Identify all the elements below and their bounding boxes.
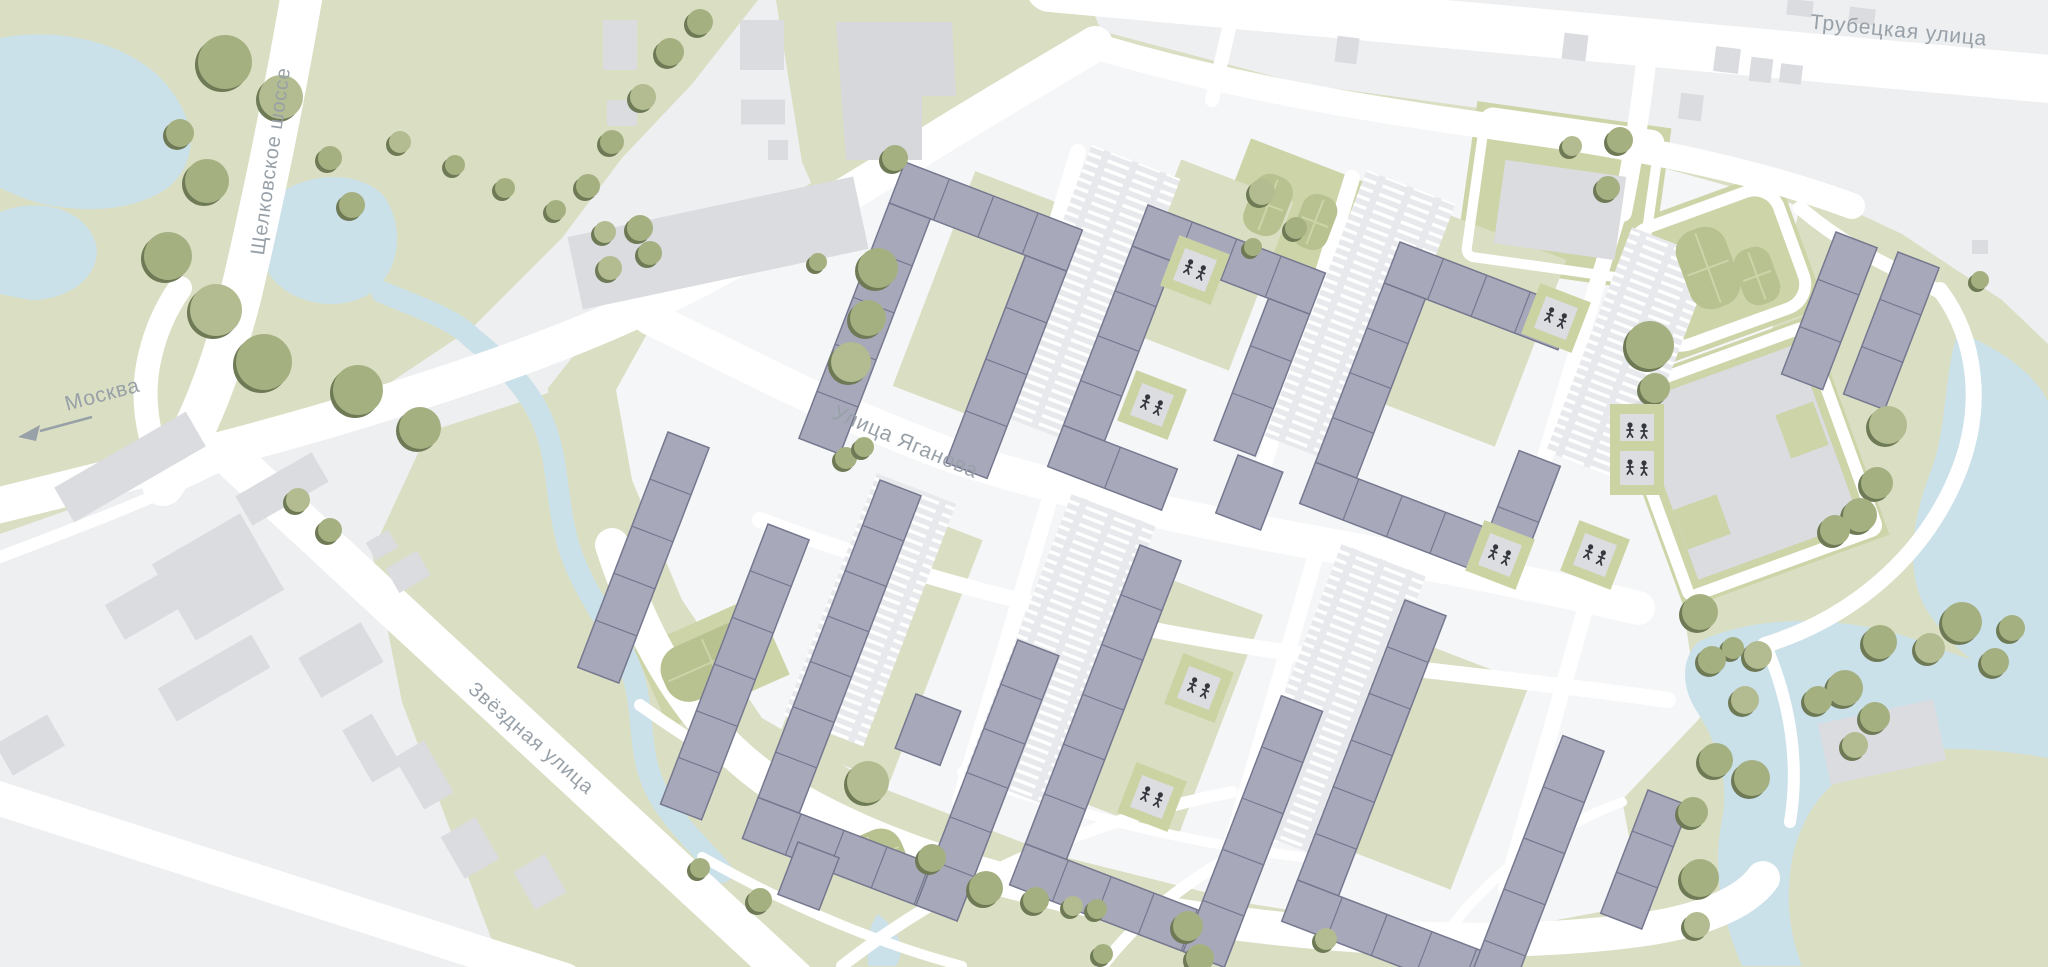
tree-crown	[1827, 670, 1863, 706]
tree-crown	[1731, 686, 1759, 714]
tree-crown	[1023, 887, 1049, 913]
tree-crown	[690, 858, 710, 878]
playground-icon	[1610, 441, 1664, 495]
tree-crown	[831, 342, 871, 382]
tree-crown	[858, 248, 898, 288]
context-building	[1749, 57, 1774, 84]
tree-crown	[389, 131, 411, 153]
tree-crown	[1244, 238, 1262, 256]
tree-crown	[1678, 797, 1708, 827]
context-building	[1678, 93, 1704, 122]
tree-crown	[399, 407, 441, 449]
tree-crown	[1093, 944, 1113, 964]
tree-crown	[1942, 602, 1982, 642]
tree-crown	[144, 232, 192, 280]
tree-crown	[185, 159, 229, 203]
context-building	[1494, 160, 1627, 260]
tree-crown	[286, 488, 310, 512]
tree-crown	[576, 174, 600, 198]
context-building	[1713, 46, 1741, 74]
tree-crown	[638, 241, 662, 265]
tree-crown	[1249, 179, 1275, 205]
tree-crown	[1682, 594, 1718, 630]
tree-crown	[600, 130, 624, 154]
tree-crown	[809, 253, 827, 271]
tree-crown	[190, 284, 242, 336]
tree-crown	[1981, 648, 2009, 676]
tree-crown	[1744, 641, 1772, 669]
tree-crown	[1734, 760, 1770, 796]
tree-crown	[1173, 911, 1203, 941]
tree-crown	[236, 334, 292, 390]
tree-crown	[318, 146, 342, 170]
tree-crown	[1063, 896, 1083, 916]
tree-crown	[656, 38, 684, 66]
tree-crown	[495, 178, 515, 198]
tree-crown	[854, 437, 874, 457]
context-building	[1779, 63, 1803, 85]
context-building	[740, 20, 784, 70]
tree-crown	[1087, 899, 1107, 919]
tree-crown	[1681, 859, 1719, 897]
tree-crown	[1285, 217, 1307, 239]
tree-crown	[1640, 373, 1670, 403]
tree-crown	[1562, 136, 1582, 156]
context-building	[603, 20, 637, 70]
playground-surface	[1620, 451, 1654, 485]
context-building	[1562, 33, 1589, 62]
tree-crown	[445, 155, 465, 175]
tree-crown	[748, 888, 772, 912]
tree-crown	[1860, 702, 1890, 732]
tree-crown	[630, 84, 656, 110]
tree-crown	[847, 761, 889, 803]
tree-crown	[1699, 743, 1733, 777]
tree-crown	[594, 221, 616, 243]
tree-crown	[1804, 686, 1832, 714]
tree-crown	[598, 256, 622, 280]
tree-crown	[318, 518, 342, 542]
tree-crown	[1915, 633, 1945, 663]
tree-crown	[1869, 406, 1907, 444]
tree-crown	[1971, 271, 1989, 289]
tree-crown	[546, 200, 566, 220]
tree-crown	[1842, 732, 1868, 758]
tree-crown	[1315, 928, 1337, 950]
tree-crown	[1698, 646, 1726, 674]
context-building	[741, 100, 785, 125]
map-canvas: Трубецкая улицаЩелковское шоссеМоскваЗвё…	[0, 0, 2048, 967]
tree-crown	[1820, 515, 1850, 545]
tree-crown	[333, 365, 383, 415]
tree-crown	[339, 192, 365, 218]
tree-crown	[1863, 625, 1897, 659]
tree-crown	[1607, 127, 1633, 153]
tree-crown	[1596, 176, 1620, 200]
tree-crown	[882, 145, 908, 171]
masterplan-map: Трубецкая улицаЩелковское шоссеМоскваЗвё…	[0, 0, 2048, 967]
tree-crown	[166, 119, 194, 147]
tree-crown	[687, 9, 713, 35]
tree-crown	[627, 215, 653, 241]
context-building	[768, 140, 788, 160]
tree-crown	[850, 300, 886, 336]
tree-crown	[1626, 321, 1674, 369]
context-building	[1972, 240, 1988, 254]
tree-crown	[1861, 467, 1893, 499]
context-building	[1334, 36, 1359, 64]
tree-crown	[1684, 912, 1710, 938]
tree-crown	[918, 844, 946, 872]
tree-crown	[969, 871, 1003, 905]
tree-crown	[1999, 615, 2025, 641]
tree-crown	[198, 35, 252, 89]
